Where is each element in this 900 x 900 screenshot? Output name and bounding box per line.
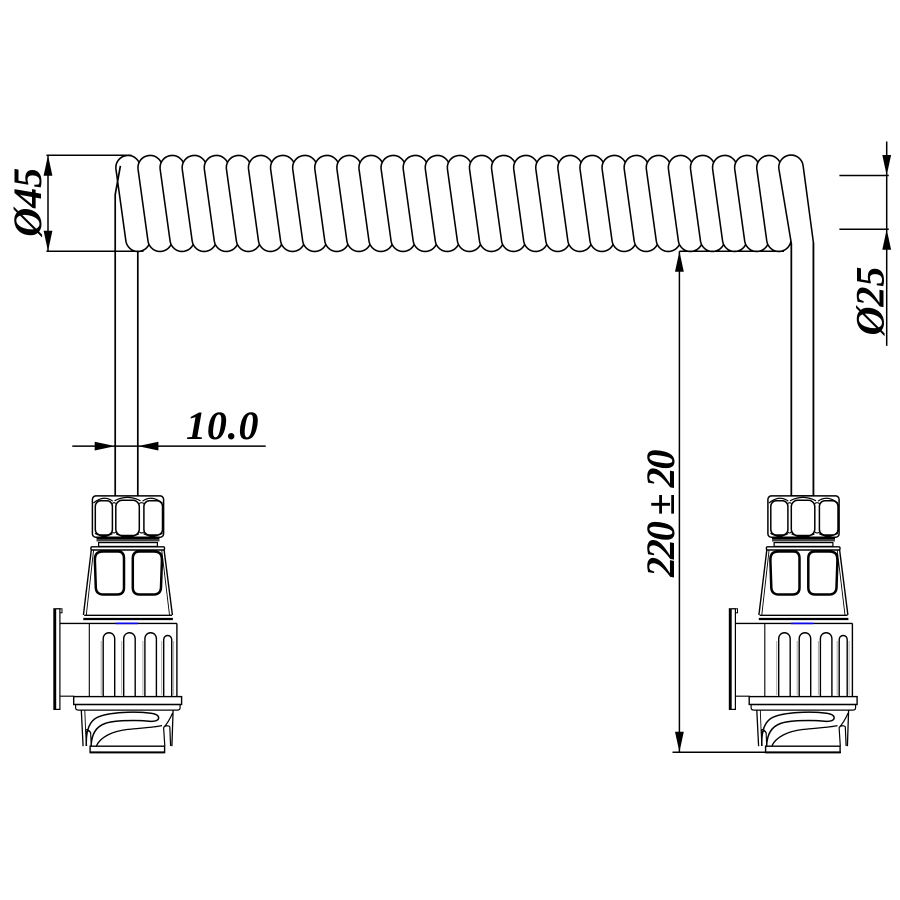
- svg-text:Ø45: Ø45: [5, 168, 50, 238]
- svg-text:Ø25: Ø25: [848, 267, 893, 337]
- svg-text:10.0: 10.0: [186, 403, 259, 448]
- svg-text:220 ± 20: 220 ± 20: [638, 450, 683, 579]
